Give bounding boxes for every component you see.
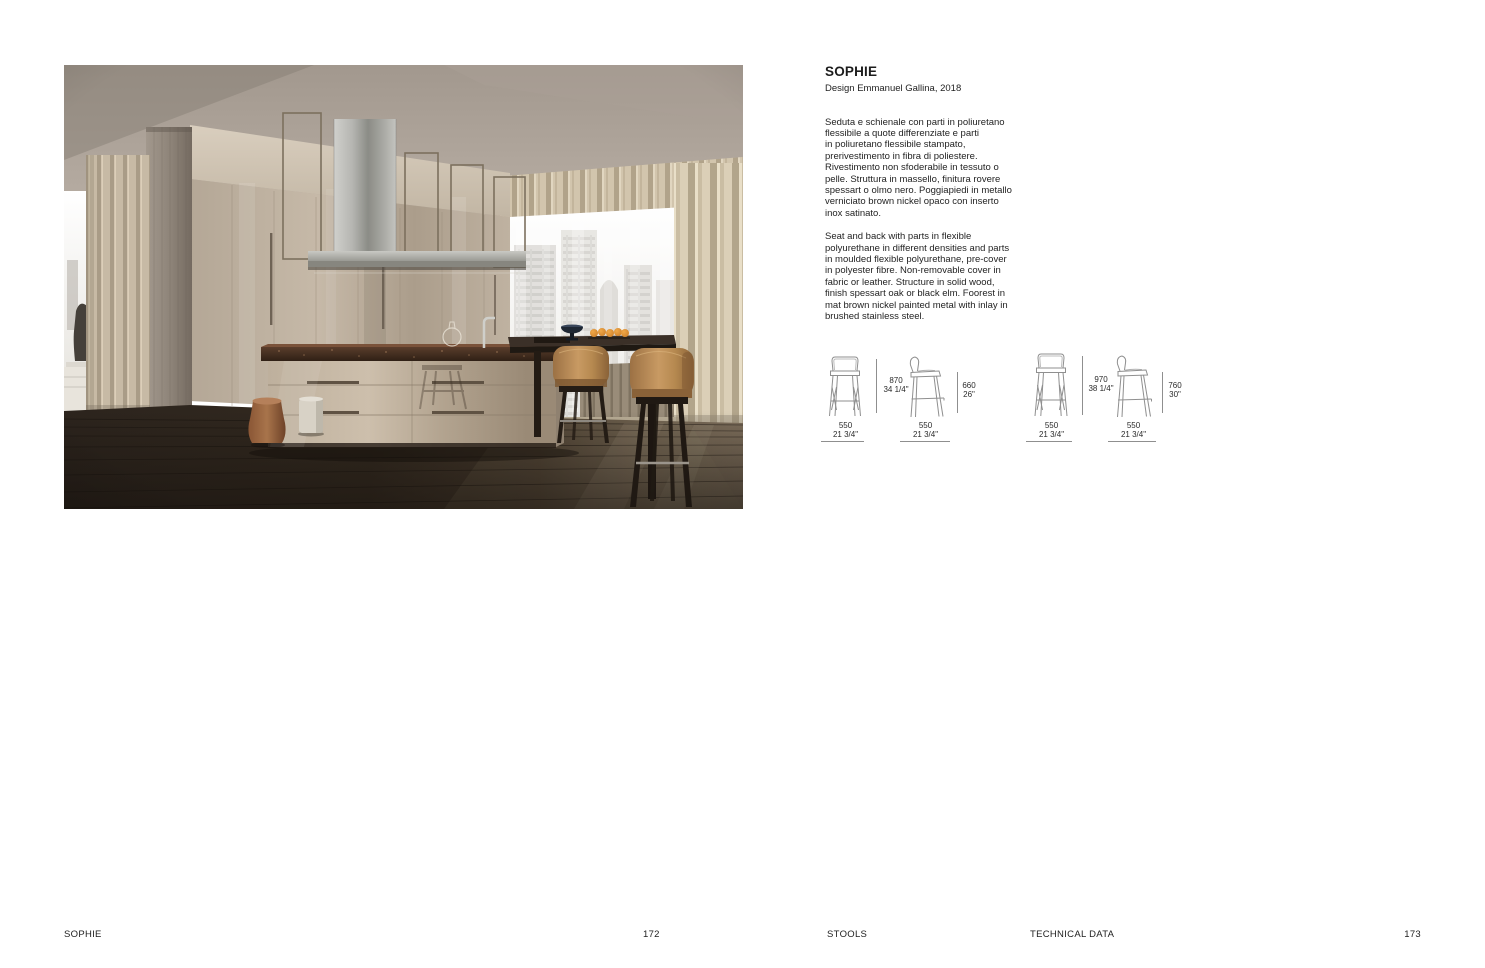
height-dim-line	[957, 372, 958, 413]
description-italian: Seduta e schienale con parti in poliuret…	[825, 117, 1021, 220]
footer-section-stools: STOOLS	[827, 929, 867, 940]
footer-section-technical-data: TECHNICAL DATA	[1030, 929, 1114, 940]
width-dim-line	[821, 441, 864, 442]
description-english: Seat and back with parts in flexible pol…	[825, 231, 1021, 322]
product-info: SOPHIE Design Emmanuel Gallina, 2018 Sed…	[825, 64, 1021, 322]
width-dim-line	[1026, 441, 1072, 442]
height-dimension: 870 34 1/4"	[879, 376, 913, 394]
kitchen-scene-illustration	[64, 65, 743, 509]
footer-page-number-left: 172	[643, 929, 660, 940]
height-dimension: 760 30"	[1163, 381, 1187, 399]
catalog-spread: SOPHIE Design Emmanuel Gallina, 2018 Sed…	[0, 0, 1485, 968]
width-dim-line	[900, 441, 950, 442]
stool-side-drawing-1	[906, 355, 948, 420]
product-title: SOPHIE	[825, 64, 1021, 79]
height-dim-line	[876, 359, 877, 413]
width-dimension: 550 21 3/4"	[817, 421, 874, 439]
product-designer: Design Emmanuel Gallina, 2018	[825, 83, 1021, 95]
height-dim-line	[1082, 356, 1083, 415]
stool-front-drawing-2	[1032, 352, 1070, 418]
stool-front-drawing-1	[827, 355, 863, 418]
footer-page-number-right: 173	[1404, 929, 1421, 940]
height-dimension: 970 38 1/4"	[1085, 375, 1117, 393]
height-dimension: 660 26"	[958, 381, 980, 399]
footer-product-name: SOPHIE	[64, 929, 102, 940]
width-dimension: 550 21 3/4"	[1105, 421, 1162, 439]
product-photo	[64, 65, 743, 509]
height-dim-line	[1162, 372, 1163, 413]
stool-side-drawing-2	[1113, 354, 1155, 420]
width-dimension: 550 21 3/4"	[897, 421, 954, 439]
width-dim-line	[1108, 441, 1156, 442]
width-dimension: 550 21 3/4"	[1023, 421, 1080, 439]
page-footer: SOPHIE 172 STOOLS TECHNICAL DATA 173	[0, 929, 1485, 943]
